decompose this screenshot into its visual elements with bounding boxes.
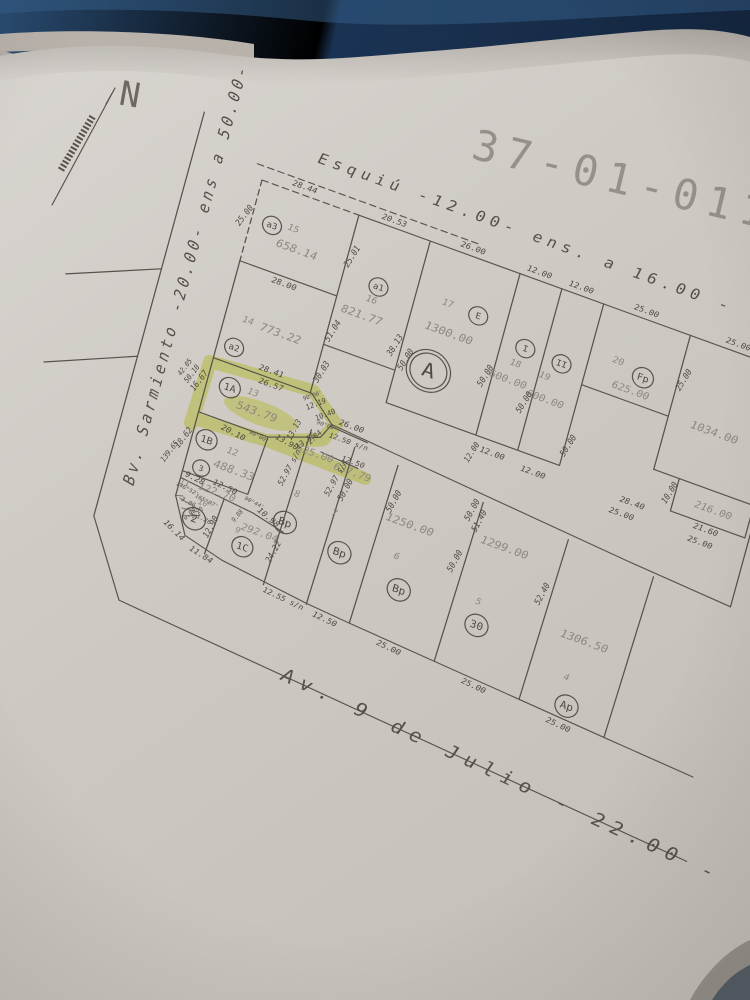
photo-of-cadastral-plan: Esquiú -12.00- ens. a 16.00 - Bv. Sarmie…: [0, 0, 750, 1000]
scene-svg: Esquiú -12.00- ens. a 16.00 - Bv. Sarmie…: [0, 0, 750, 1000]
photo-vignette: [0, 0, 750, 1000]
